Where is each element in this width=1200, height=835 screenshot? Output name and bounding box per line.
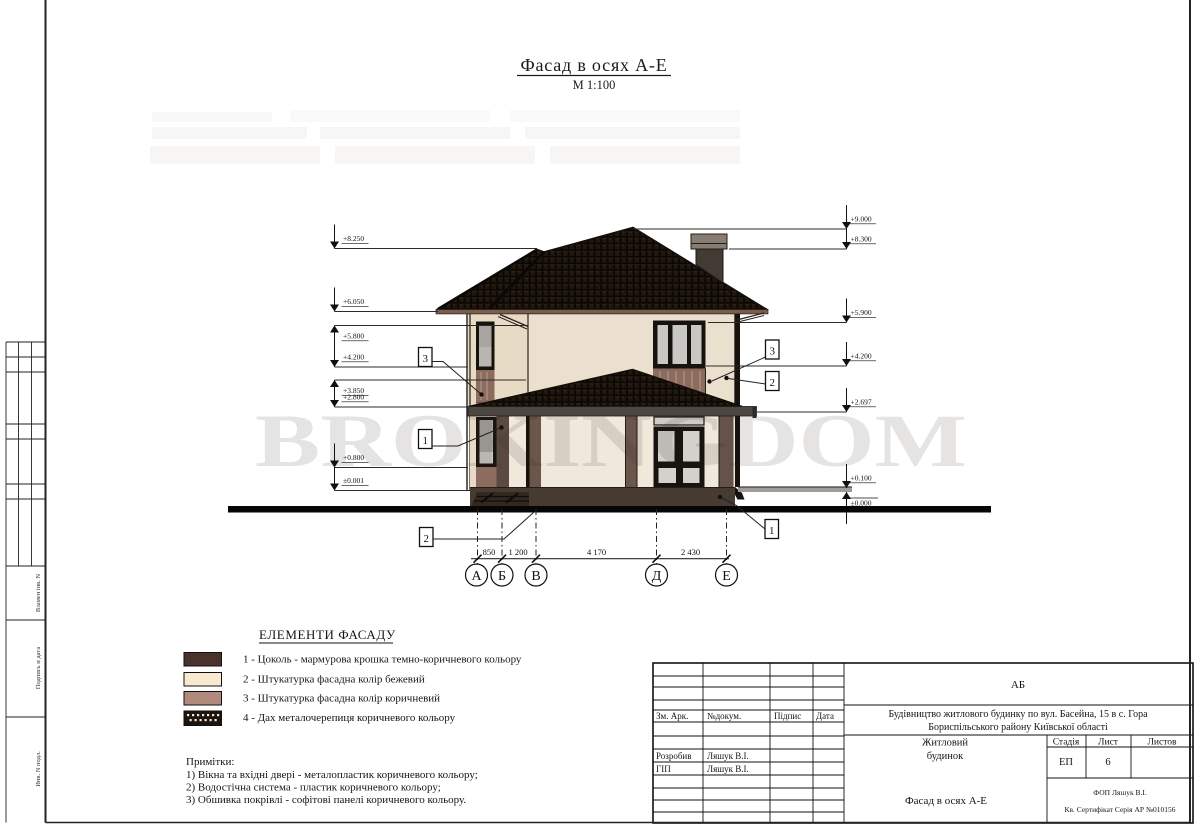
- svg-text:будинок: будинок: [927, 751, 964, 762]
- svg-text:М 1:100: М 1:100: [573, 78, 616, 92]
- svg-text:2) Водостічна система - пласти: 2) Водостічна система - пластик коричнев…: [186, 782, 441, 794]
- svg-text:АБ: АБ: [1011, 679, 1025, 691]
- svg-text:+9.000: +9.000: [851, 215, 872, 224]
- svg-text:BROKINGDOM: BROKINGDOM: [255, 400, 967, 483]
- svg-text:Д: Д: [652, 569, 662, 584]
- svg-text:В: В: [531, 569, 540, 584]
- svg-text:1 - Цоколь - мармурова крошка: 1 - Цоколь - мармурова крошка темно-кори…: [243, 654, 522, 666]
- svg-text:Підпис: Підпис: [774, 711, 801, 721]
- svg-text:Подпись и дата: Подпись и дата: [35, 647, 42, 690]
- svg-text:Инв. N подл.: Инв. N подл.: [35, 751, 42, 787]
- svg-text:+5.900: +5.900: [851, 308, 872, 317]
- svg-text:Кв. Сертифікат Серія АР №01015: Кв. Сертифікат Серія АР №010156: [1064, 805, 1175, 814]
- svg-text:2: 2: [423, 533, 429, 545]
- svg-text:Фасад в осях А-Е: Фасад в осях А-Е: [520, 55, 667, 75]
- svg-text:+8.300: +8.300: [851, 235, 872, 244]
- svg-text:+4.200: +4.200: [343, 353, 364, 362]
- svg-text:4 170: 4 170: [587, 547, 606, 557]
- svg-text:2: 2: [769, 377, 775, 389]
- svg-text:+2.800: +2.800: [343, 393, 364, 402]
- svg-text:Взамен інв. N: Взамен інв. N: [35, 574, 42, 612]
- svg-text:3: 3: [422, 353, 428, 365]
- svg-text:Будівництво житлового будинку: Будівництво житлового будинку по вул. Ба…: [888, 709, 1148, 720]
- svg-text:4 - Дах металочерепиця коричне: 4 - Дах металочерепиця коричневого кольо…: [243, 712, 456, 724]
- svg-text:ЕП: ЕП: [1059, 757, 1073, 768]
- svg-text:Лист: Лист: [1098, 738, 1119, 748]
- svg-text:Б: Б: [498, 569, 506, 584]
- svg-text:6: 6: [1105, 757, 1110, 768]
- svg-text:Ляшук В.І.: Ляшук В.І.: [707, 764, 749, 774]
- svg-text:3) Обшивка покрівлі - софітові: 3) Обшивка покрівлі - софітові панелі ко…: [186, 794, 466, 806]
- svg-text:Стадія: Стадія: [1053, 738, 1080, 748]
- svg-text:Зм. Арк.: Зм. Арк.: [656, 711, 688, 721]
- svg-text:+0.800: +0.800: [343, 453, 364, 462]
- svg-text:±0.001: ±0.001: [343, 476, 364, 485]
- svg-text:Дата: Дата: [816, 711, 834, 721]
- svg-text:1: 1: [769, 525, 775, 537]
- svg-text:+8.250: +8.250: [343, 234, 364, 243]
- svg-text:+6.050: +6.050: [343, 297, 364, 306]
- svg-text:1) Вікна та вхідні двері - мет: 1) Вікна та вхідні двері - металопластик…: [186, 769, 478, 781]
- svg-text:Ляшук В.І.: Ляшук В.І.: [707, 751, 749, 761]
- svg-text:850: 850: [483, 547, 496, 557]
- svg-text:+0.100: +0.100: [851, 474, 872, 483]
- svg-text:Розробив: Розробив: [656, 751, 691, 761]
- svg-text:2 - Штукатурка фасадна колір б: 2 - Штукатурка фасадна колір бежевий: [243, 674, 425, 686]
- svg-text:ЕЛЕМЕНТИ ФАСАДУ: ЕЛЕМЕНТИ ФАСАДУ: [259, 627, 396, 642]
- svg-text:А: А: [471, 569, 482, 584]
- svg-text:Бориспільського району Київськ: Бориспільського району Київської області: [928, 722, 1108, 733]
- svg-text:+2.697: +2.697: [851, 398, 872, 407]
- svg-text:3: 3: [769, 346, 775, 358]
- svg-text:1 200: 1 200: [508, 547, 527, 557]
- svg-text:1: 1: [422, 435, 428, 447]
- svg-text:Житловий: Житловий: [922, 738, 968, 749]
- svg-text:ГІП: ГІП: [656, 764, 671, 774]
- svg-text:Листов: Листов: [1147, 738, 1177, 748]
- svg-text:2 430: 2 430: [681, 547, 700, 557]
- svg-text:+5.800: +5.800: [343, 332, 364, 341]
- svg-text:№докум.: №докум.: [707, 711, 741, 721]
- svg-text:Примітки:: Примітки:: [186, 756, 234, 768]
- svg-text:Е: Е: [722, 569, 731, 584]
- svg-text:ФОП Ляшук В.І.: ФОП Ляшук В.І.: [1093, 788, 1147, 797]
- svg-text:Фасад в осях А-Е: Фасад в осях А-Е: [905, 795, 987, 807]
- svg-text:+4.200: +4.200: [851, 352, 872, 361]
- svg-text:3 - Штукатурка фасадна колір к: 3 - Штукатурка фасадна колір коричневий: [243, 693, 440, 705]
